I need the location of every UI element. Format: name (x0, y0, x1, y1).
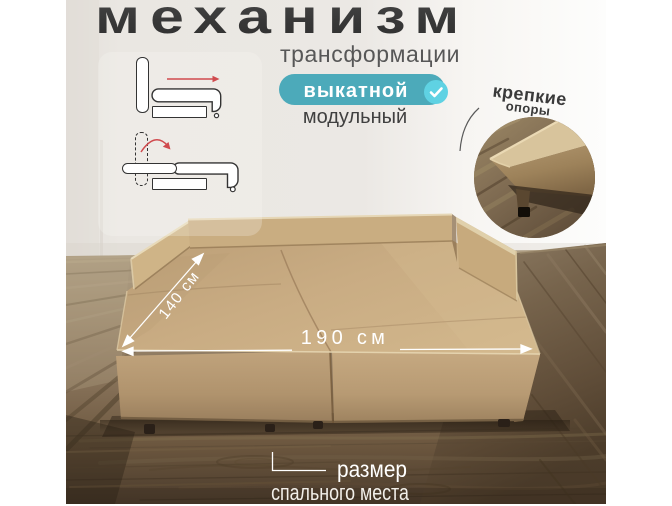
svg-text:190 см: 190 см (301, 327, 389, 349)
